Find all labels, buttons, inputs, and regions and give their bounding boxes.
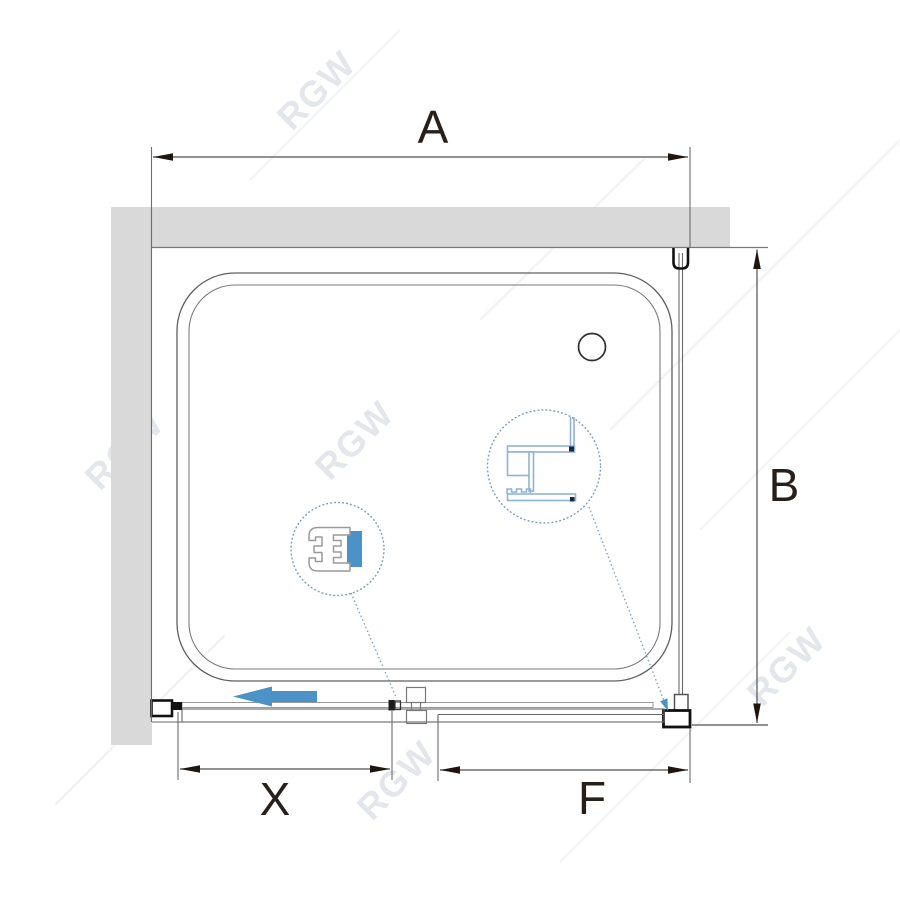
callout-circle	[291, 503, 384, 596]
dim-arrowhead-left	[440, 766, 460, 774]
roller-carriage-upper	[407, 688, 426, 703]
watermark-text: RGW	[307, 392, 402, 487]
dim-arrowhead-left	[180, 765, 200, 773]
profile-clamp-outline	[309, 528, 350, 572]
bottom-right-bracket	[664, 711, 691, 728]
watermark-text: RGW	[349, 732, 444, 827]
dim-arrowhead-right	[668, 766, 688, 774]
dim-arrowhead-right	[668, 153, 688, 161]
profile-glass-block	[347, 531, 362, 567]
drain-circle	[579, 334, 606, 361]
door-assembly	[152, 687, 665, 724]
profile-section-drawing-lower	[309, 528, 362, 572]
dim-label-x: X	[260, 773, 291, 825]
left-wall-profile-bracket	[152, 701, 173, 717]
profile-fastener	[569, 447, 574, 452]
callout-circle	[488, 410, 601, 523]
slide-direction-arrow-icon	[233, 687, 317, 707]
dim-arrowhead-down	[753, 704, 761, 724]
bottom-panel-holder	[675, 695, 689, 711]
top-wall-profile-bracket	[674, 248, 689, 269]
detail-callout-lower	[291, 503, 396, 698]
guide-rail-bar	[182, 703, 653, 708]
left-bracket-clip	[171, 702, 182, 710]
callout-leader-line	[589, 507, 666, 706]
watermark-text: RGW	[739, 618, 834, 713]
enclosure-diagram: RGW RGW RGW RGW RGW	[0, 0, 900, 900]
detail-callout-upper	[488, 410, 669, 711]
dim-arrowhead-up	[753, 250, 761, 270]
profile-strut	[529, 452, 534, 491]
watermark-layer: RGW RGW RGW RGW RGW	[55, 30, 900, 862]
shower-tray	[177, 273, 672, 681]
wall-top	[111, 207, 730, 248]
dim-label-a: A	[418, 101, 449, 153]
watermark-ribbon	[700, 330, 900, 530]
fixed-side-panel	[664, 248, 691, 727]
watermark-text: RGW	[269, 42, 364, 137]
profile-section-drawing-upper	[507, 417, 576, 502]
dimension-f: F	[438, 715, 690, 824]
drawing-stage: RGW RGW RGW RGW RGW	[0, 0, 900, 900]
door-edge-profile	[389, 700, 395, 711]
wall-left	[111, 207, 152, 745]
dim-label-b: B	[769, 459, 800, 511]
tray-inner-edge	[189, 285, 660, 669]
walls	[111, 207, 768, 745]
dim-arrowhead-left	[153, 153, 173, 161]
watermark-ribbon	[610, 140, 900, 430]
profile-fastener	[570, 497, 575, 502]
dim-label-f: F	[578, 772, 606, 824]
profile-top-bar	[508, 446, 575, 452]
profile-bottom-bar	[508, 494, 576, 501]
